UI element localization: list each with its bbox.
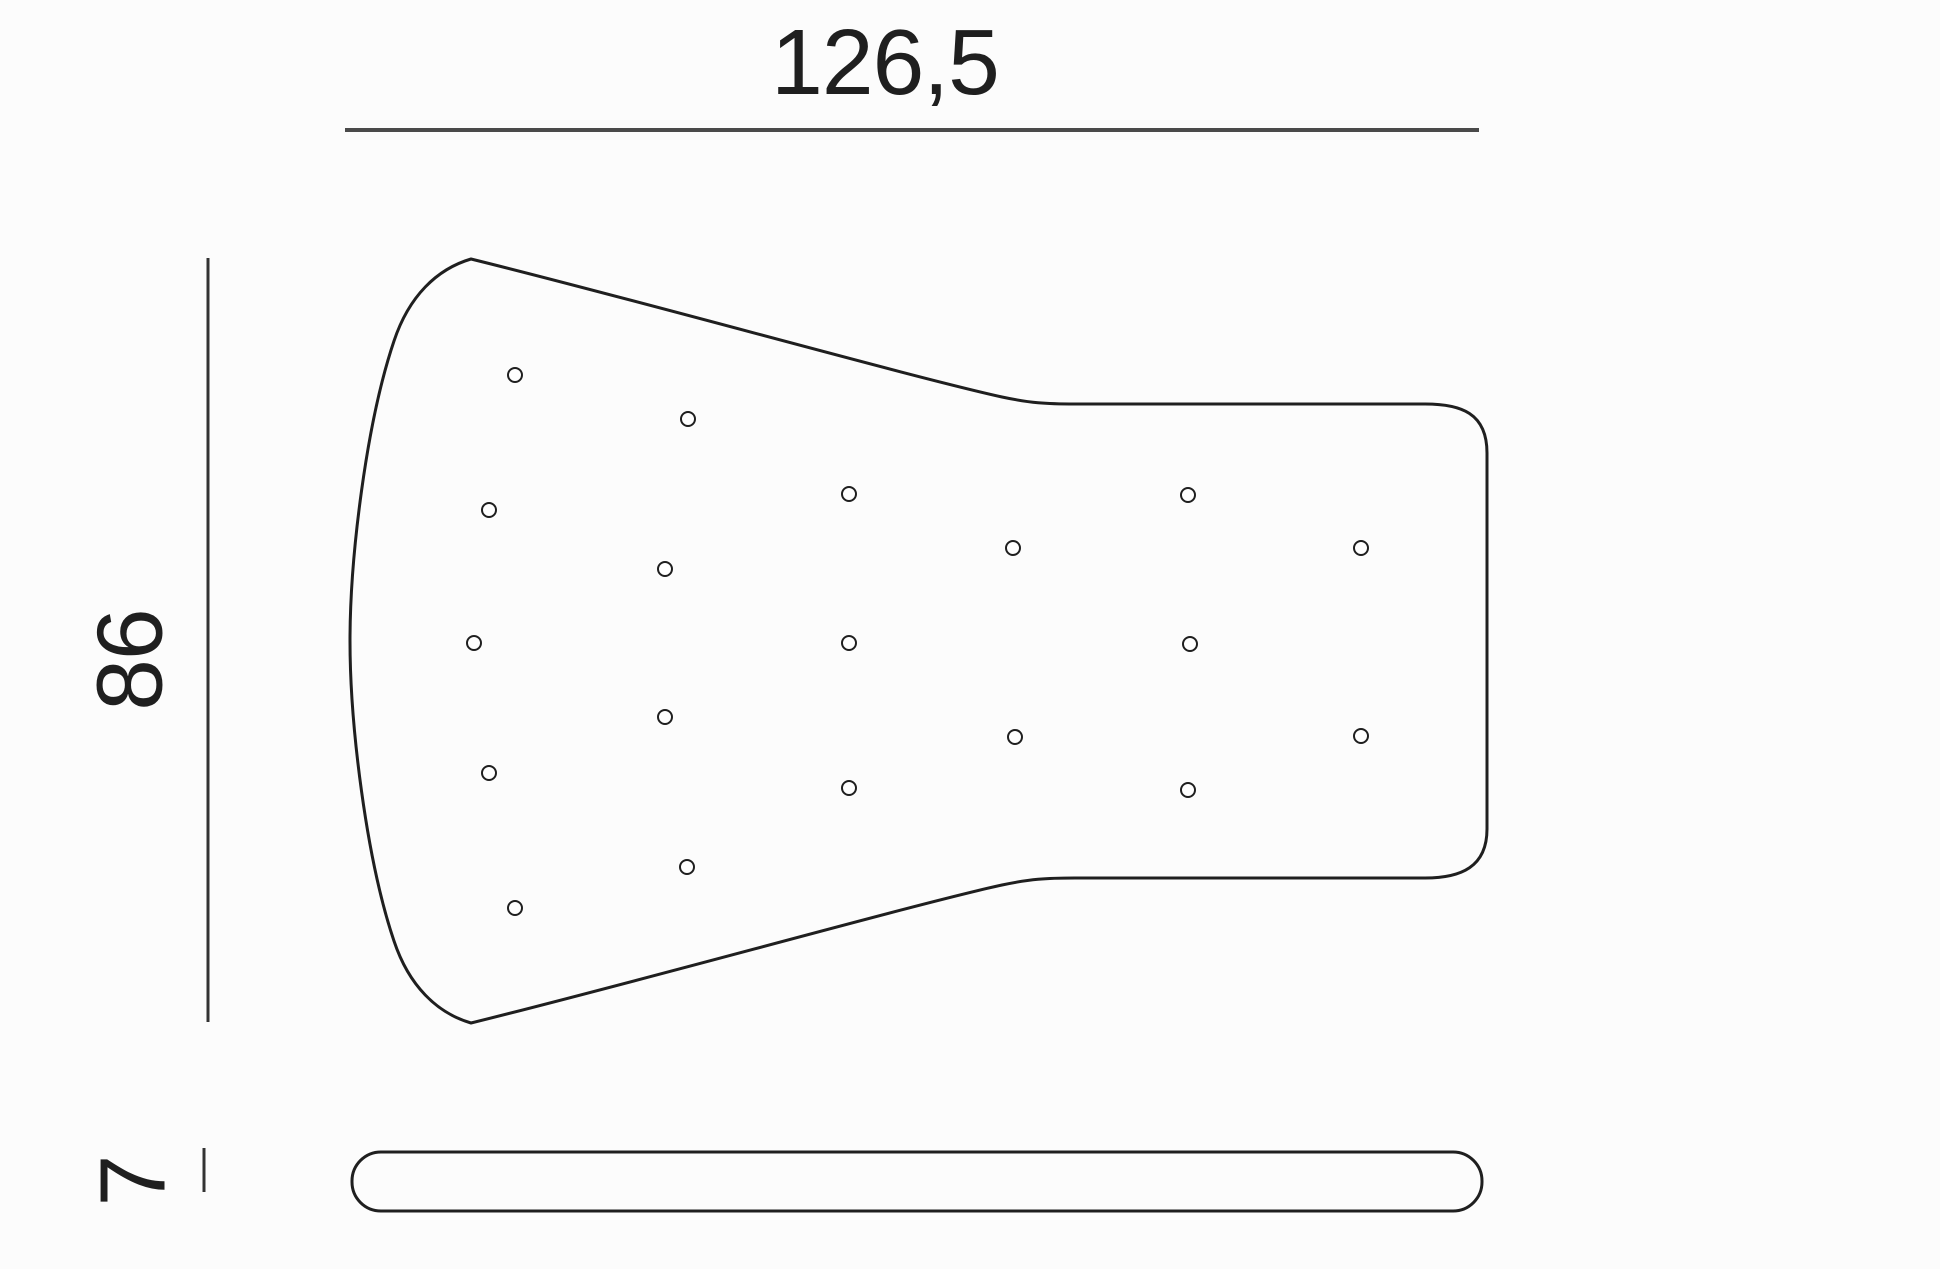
ventilation-hole — [680, 860, 694, 874]
ventilation-hole — [1181, 488, 1195, 502]
ventilation-hole — [1008, 730, 1022, 744]
ventilation-hole — [842, 487, 856, 501]
drawing-canvas — [0, 0, 1940, 1269]
ventilation-hole — [482, 503, 496, 517]
ventilation-hole — [1181, 783, 1195, 797]
ventilation-hole — [482, 766, 496, 780]
ventilation-hole — [1006, 541, 1020, 555]
ventilation-hole — [1183, 637, 1197, 651]
ventilation-hole — [508, 368, 522, 382]
technical-drawing: 126,5 86 7 — [0, 0, 1940, 1269]
ventilation-hole — [658, 562, 672, 576]
ventilation-hole — [467, 636, 481, 650]
ventilation-hole — [1354, 729, 1368, 743]
ventilation-hole — [681, 412, 695, 426]
ventilation-hole — [842, 636, 856, 650]
ventilation-hole — [1354, 541, 1368, 555]
ventilation-hole — [842, 781, 856, 795]
hole-pattern — [467, 368, 1368, 915]
ventilation-hole — [508, 901, 522, 915]
side-view-outline — [352, 1152, 1482, 1211]
ventilation-hole — [658, 710, 672, 724]
